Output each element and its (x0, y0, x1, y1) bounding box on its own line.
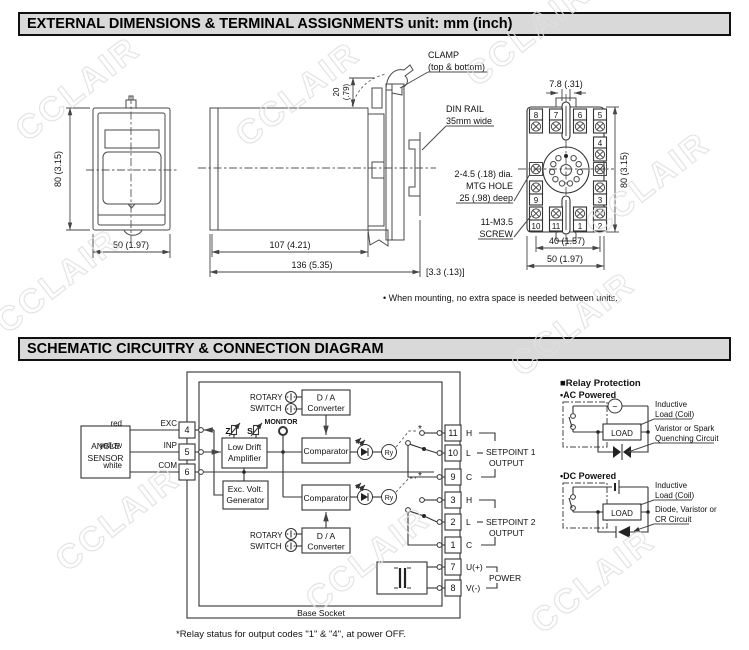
led-indicator-1 (350, 438, 373, 460)
rotary-switch-2: ROTARY SWITCH (250, 529, 302, 552)
side-body (210, 108, 368, 230)
side-mounting-plate (386, 84, 404, 240)
front-label-window (103, 152, 161, 204)
comparator2-label: Comparator (304, 493, 349, 503)
wire-exc-label: EXC (161, 419, 178, 428)
mtg-hole-label-2: MTG HOLE (466, 181, 513, 191)
terminal-3: 3 (598, 196, 603, 205)
schematic-terminal-6: 6 (184, 467, 189, 477)
diode-label-2: CR Circuit (655, 515, 692, 524)
wire-yellow-label: yellow (100, 441, 122, 450)
ac-protection-circuit: ~ LOAD (563, 399, 650, 460)
front-display-window (105, 130, 159, 148)
socket-terminal-4: 4 (594, 137, 607, 161)
terminal-8: 8 (534, 111, 539, 120)
rotary1-line2: SWITCH (250, 404, 282, 413)
dim-clamp-20: 20 (332, 87, 341, 96)
technical-drawing: 80 (3.15) 50 (1.97) 20 (.79) (0, 0, 749, 650)
rotary2-line2: SWITCH (250, 542, 282, 551)
mounting-note: • When mounting, no extra space is neede… (383, 293, 618, 303)
generator-line1: Exc. Volt. (228, 484, 263, 494)
signal-l1: L (466, 448, 471, 458)
relay-protection: ■Relay Protection •AC Powered ~ LOAD (560, 378, 719, 538)
power-transformer-block (377, 562, 437, 594)
terminal-11: 11 (552, 222, 561, 231)
dim-rail-gap: [3.3 (.13)] (426, 267, 465, 277)
output-labels: H L C H L C U(+) V(-) SETPOINT 1 OUTPUT … (466, 428, 536, 593)
dim-slot-78: 7.8 (.31) (549, 79, 583, 89)
side-view: 20 (.79) 107 (4.21) 136 (5.35) [3.3 (.13… (198, 50, 494, 277)
signal-c1: C (466, 472, 472, 482)
base-socket-label: Base Socket (297, 608, 345, 618)
da-converter-2-block: D / A Converter (302, 528, 350, 553)
datasheet-page: EXTERNAL DIMENSIONS & TERMINAL ASSIGNMEN… (0, 0, 749, 650)
zero-span-trimmers: Z S (225, 423, 262, 438)
rotary-switch-1: ROTARY SWITCH (250, 392, 302, 415)
diode-icon (618, 526, 630, 538)
setpoint1-label-1: SETPOINT 1 (486, 447, 536, 457)
varistor-label-2: Quenching Circuit (655, 434, 719, 443)
schematic-terminal-1: 1 (450, 540, 455, 550)
power-label: POWER (489, 573, 521, 583)
terminal-5: 5 (598, 111, 603, 120)
schematic-terminal-7: 7 (450, 562, 455, 572)
dc-inductive-label-1: Inductive (655, 481, 688, 490)
terminal-2: 2 (598, 222, 603, 231)
din-rail-label-1: DIN RAIL (446, 104, 484, 114)
dim-socket-width: 50 (1.97) (547, 254, 583, 264)
dim-clamp-079: (.79) (342, 83, 351, 100)
amplifier-line1: Low Drift (228, 442, 262, 452)
side-clamp (386, 65, 413, 95)
schematic-terminal-11: 11 (448, 428, 457, 438)
front-view: 80 (3.15) 50 (1.97) (53, 96, 177, 258)
da2-line1: D / A (317, 531, 336, 541)
asterisk-2: * (418, 471, 422, 482)
generator-line2: Generator (226, 495, 264, 505)
ac-inductive-label-1: Inductive (655, 400, 688, 409)
led-indicator-2 (350, 483, 373, 505)
exc-volt-generator-block: Exc. Volt. Generator (223, 481, 268, 509)
setpoint2-label-2: OUTPUT (489, 528, 524, 538)
relay-contact-2 (406, 498, 437, 545)
wire-white-label: white (102, 461, 122, 470)
comparator-1-block: Comparator (302, 438, 350, 463)
relay1-label: Ry (385, 450, 394, 457)
ac-inductive-label-2: Load (Coil) (655, 410, 694, 419)
relay-coil-1: Ry (373, 445, 397, 460)
relay-coil-2: Ry (373, 490, 397, 505)
dim-front-height: 80 (3.15) (53, 151, 63, 187)
wire-red-label: red (110, 419, 122, 428)
terminal-10: 10 (532, 222, 541, 231)
dim-depth-136: 136 (5.35) (291, 260, 332, 270)
terminal-1: 1 (578, 222, 583, 231)
comparator-2-block: Comparator (302, 485, 350, 510)
da1-line2: Converter (307, 403, 344, 413)
mtg-hole-label-1: 2-4.5 (.18) dia. (454, 169, 513, 179)
schematic-terminal-2: 2 (450, 517, 455, 527)
signal-c2: C (466, 540, 472, 550)
signal-l2: L (466, 517, 471, 527)
signal-h2: H (466, 495, 472, 505)
schematic-terminal-4: 4 (184, 425, 189, 435)
screw-label-1: 11-M3.5 (481, 217, 513, 227)
low-drift-amplifier-block: Low Drift Amplifier (222, 438, 267, 468)
diode-label-1: Diode, Varistor or (655, 505, 717, 514)
dc-inductive-label-2: Load (Coil) (655, 491, 694, 500)
varistor-label-1: Varistor or Spark (655, 424, 715, 433)
ac-load-label: LOAD (611, 429, 633, 438)
ac-source-symbol: ~ (612, 402, 617, 412)
schematic-terminal-9: 9 (450, 472, 455, 482)
wire-inp-label: INP (164, 441, 177, 450)
rotary2-line1: ROTARY (250, 531, 283, 540)
wire-com-label: COM (158, 461, 177, 470)
varistor-icon (613, 446, 621, 458)
comparator1-label: Comparator (304, 446, 349, 456)
terminal-7: 7 (554, 111, 559, 120)
da2-line2: Converter (307, 542, 344, 552)
da-converter-1-block: D / A Converter (302, 390, 350, 415)
front-body (93, 108, 170, 230)
dim-socket-height: 80 (3.15) (619, 152, 629, 188)
angle-sensor-block: ANGLE SENSOR (81, 426, 130, 478)
schematic: Base Socket ANGLE SENSOR red EXC yellow … (81, 372, 536, 618)
monitor-label: MONITOR (265, 419, 298, 426)
dim-hole-span: 40 (1.57) (549, 236, 585, 246)
terminal-6: 6 (578, 111, 583, 120)
terminal-4: 4 (598, 139, 603, 148)
ac-powered-title: •AC Powered (560, 390, 616, 400)
amplifier-line2: Amplifier (228, 453, 261, 463)
relay2-label: Ry (385, 495, 394, 502)
screw-label-2: SCREW (480, 229, 514, 239)
din-rail-profile (409, 132, 420, 216)
schematic-terminal-3: 3 (450, 495, 455, 505)
relay-footnote: *Relay status for output codes "1" & "4"… (176, 629, 406, 640)
dc-powered-title: •DC Powered (560, 471, 616, 481)
clamp-label-2: (top & bottom) (428, 62, 485, 72)
relay-protection-title: ■Relay Protection (560, 378, 641, 389)
signal-h1: H (466, 428, 472, 438)
rotary1-line1: ROTARY (250, 393, 283, 402)
signal-u: U(+) (466, 562, 483, 572)
mtg-hole-left (530, 163, 543, 176)
terminal-9: 9 (534, 196, 539, 205)
dim-depth-107: 107 (4.21) (269, 240, 310, 250)
dim-front-width: 50 (1.97) (113, 240, 149, 250)
mtg-hole-label-3: 25 (.98) deep (459, 193, 513, 203)
setpoint1-label-2: OUTPUT (489, 458, 524, 468)
output-terminals: 11 10 9 3 2 1 7 8 (437, 425, 461, 596)
setpoint2-label-1: SETPOINT 2 (486, 517, 536, 527)
schematic-terminal-5: 5 (184, 447, 189, 457)
schematic-terminal-8: 8 (450, 583, 455, 593)
schematic-terminal-10: 10 (448, 448, 458, 458)
dc-protection-circuit: LOAD (563, 480, 650, 538)
din-rail-label-2: 35mm wide (446, 116, 492, 126)
clamp-label-1: CLAMP (428, 50, 459, 60)
monitor-point: MONITOR (265, 419, 298, 435)
dc-load-label: LOAD (611, 509, 633, 518)
signal-v: V(-) (466, 583, 480, 593)
da1-line1: D / A (317, 393, 336, 403)
